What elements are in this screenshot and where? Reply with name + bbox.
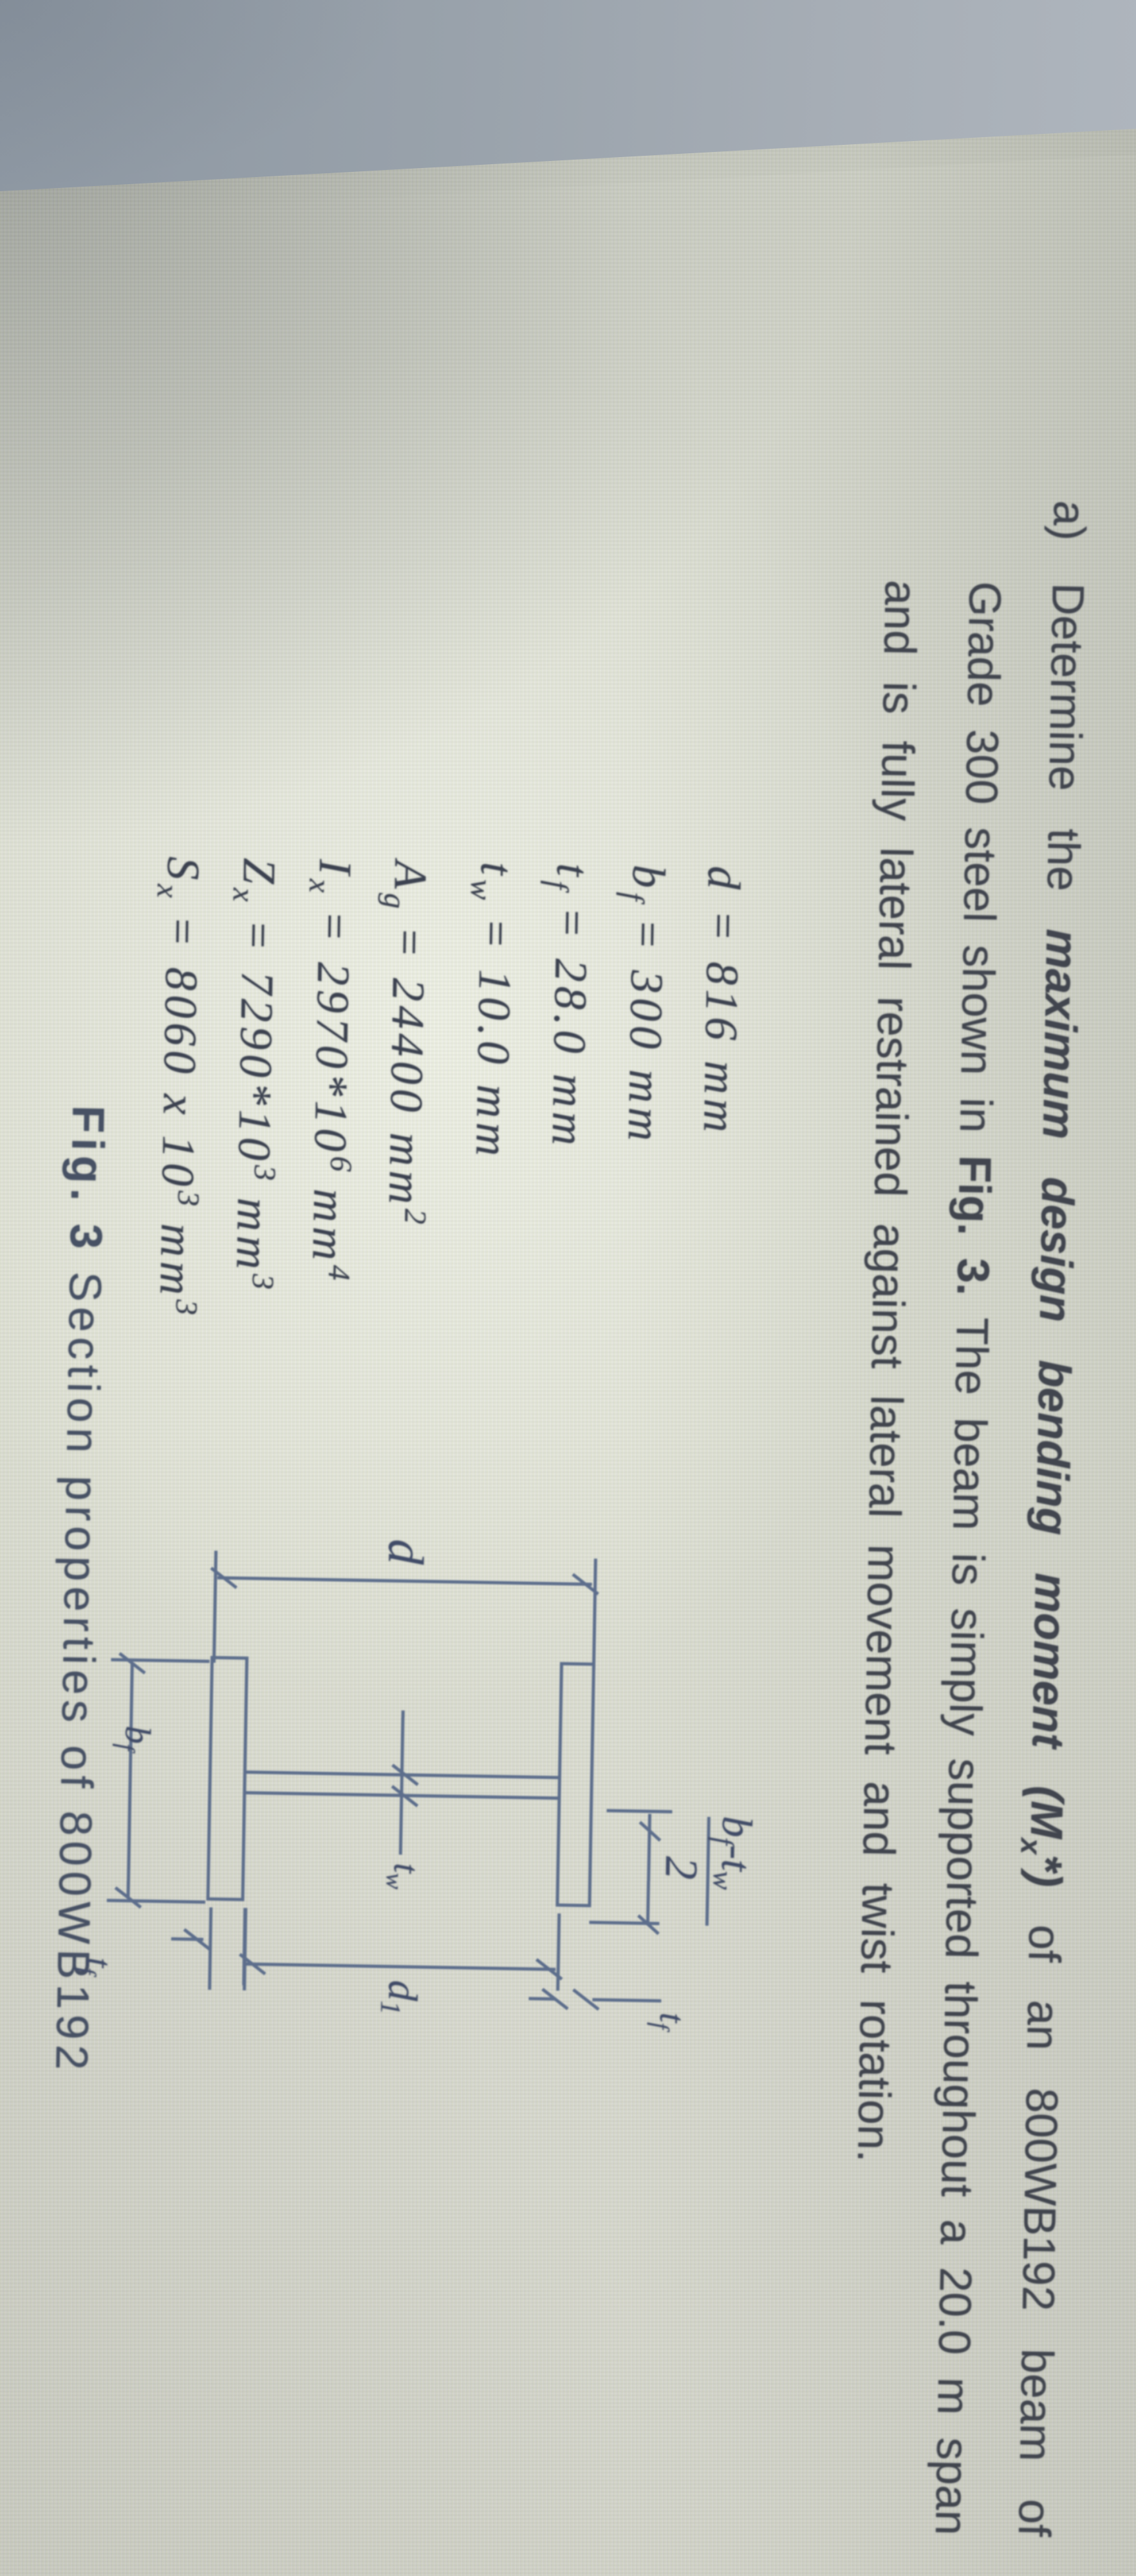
svg-text:tw: tw	[380, 1863, 426, 1890]
svg-text:bf-tw: bf-tw	[707, 1816, 760, 1891]
svg-text:d1: d1	[375, 1980, 426, 2015]
svg-text:tf: tf	[73, 1957, 119, 1978]
svg-text:tf: tf	[647, 2012, 693, 2033]
svg-text:bf: bf	[112, 1725, 158, 1754]
svg-text:2: 2	[656, 1856, 708, 1880]
svg-text:d: d	[378, 1539, 434, 1566]
